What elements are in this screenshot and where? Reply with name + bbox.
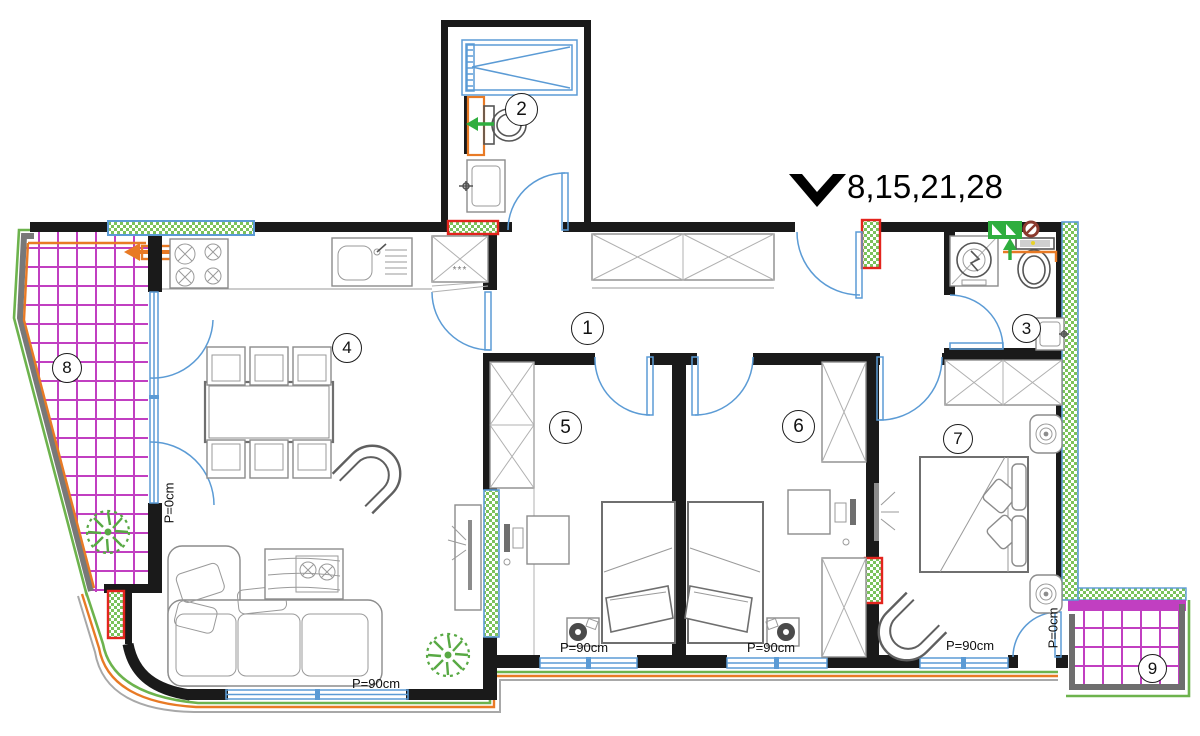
coffee-table [265, 549, 343, 599]
plant-living [427, 634, 469, 676]
bed-5 [602, 502, 675, 643]
fire-damper-bedroom6 [865, 558, 882, 603]
vent-grille-bathroom3-icon [988, 221, 1022, 239]
room-number-2: 2 [505, 93, 538, 126]
wardrobe-7 [945, 360, 1062, 405]
door-terrace8-lower [150, 442, 214, 505]
bedroom-7-furniture [867, 360, 1062, 672]
dim-p90-living: P=90cm [352, 676, 400, 691]
dim-p90-bedroom6: P=90cm [747, 640, 795, 655]
dining-set [205, 347, 333, 478]
door-bathroom2 [508, 173, 568, 230]
fridge: *** [432, 236, 488, 292]
hallway-wardrobe [592, 234, 774, 288]
insulated-wall-east [1062, 222, 1078, 600]
door-bathroom3 [950, 295, 1003, 349]
fire-damper-entrance [862, 220, 880, 268]
stove [170, 239, 228, 288]
room-number-8: 8 [52, 353, 82, 383]
fire-damper-living [108, 591, 124, 638]
section-marker-triangle-icon [789, 174, 846, 207]
wall-niche [464, 96, 467, 154]
dim-p0-terrace9: P=0cm [1046, 608, 1061, 649]
bed-7 [920, 457, 1028, 572]
fire-damper-bath2 [448, 221, 498, 234]
tv-living [448, 505, 481, 610]
door-living-hallway [432, 292, 491, 350]
bed-6 [685, 502, 763, 643]
door-bedroom7 [877, 357, 942, 420]
vent-arrow-left-bathroom2-icon [466, 117, 494, 131]
room-number-7: 7 [943, 424, 973, 454]
terrace-9 [1066, 588, 1189, 696]
freezer-stars: *** [453, 265, 468, 276]
bathtub [462, 40, 577, 95]
section-marker-label: 8,15,21,28 [847, 168, 1003, 206]
dim-p90-bedroom5: P=90cm [560, 640, 608, 655]
door-terrace8-upper [150, 320, 213, 378]
room-number-3: 3 [1012, 314, 1041, 343]
nightstand-7-top [1030, 415, 1062, 453]
toilet-bath3 [1016, 238, 1054, 288]
no-entry-symbol-icon [1024, 222, 1038, 236]
insulated-wall-bedroom5 [484, 490, 499, 637]
floorplan-page: *** [0, 0, 1200, 736]
wardrobe-6-top [822, 362, 866, 462]
window-bedroom7 [920, 657, 1008, 669]
window-bedroom6 [727, 657, 827, 669]
armchair-living [333, 434, 412, 513]
washing-machine [950, 236, 998, 286]
wardrobe-6-bottom [822, 558, 866, 657]
door-bedroom5 [595, 357, 653, 415]
window-living-west [149, 292, 159, 503]
dim-p90-bedroom7: P=90cm [946, 638, 994, 653]
bedroom-6-furniture [685, 362, 866, 657]
sink-bath2 [459, 160, 505, 212]
door-entrance [797, 232, 862, 298]
desk-6 [788, 490, 856, 545]
floorplan-canvas: *** [0, 0, 1200, 736]
room-number-5: 5 [549, 411, 582, 444]
room-number-6: 6 [782, 410, 815, 443]
bathroom-2-fixtures [459, 40, 577, 212]
kitchen: *** [162, 236, 488, 292]
sink-bath3 [1036, 318, 1069, 350]
dim-p0-terrace8: P=0cm [162, 483, 177, 524]
wardrobe-5 [490, 362, 534, 488]
vent-arrow-up-bathroom3-icon [1003, 238, 1017, 260]
door-bedroom6 [692, 357, 753, 415]
room-number-1: 1 [571, 312, 604, 345]
room-number-9: 9 [1138, 654, 1167, 683]
desk-5 [504, 516, 569, 565]
window-bedroom5 [540, 657, 637, 669]
room-number-4: 4 [332, 333, 362, 363]
bathroom-3-fixtures [950, 221, 1069, 350]
kitchen-sink [332, 238, 412, 286]
glazed-infill-kitchen-top [108, 221, 254, 235]
tv-bedroom7 [874, 483, 899, 541]
